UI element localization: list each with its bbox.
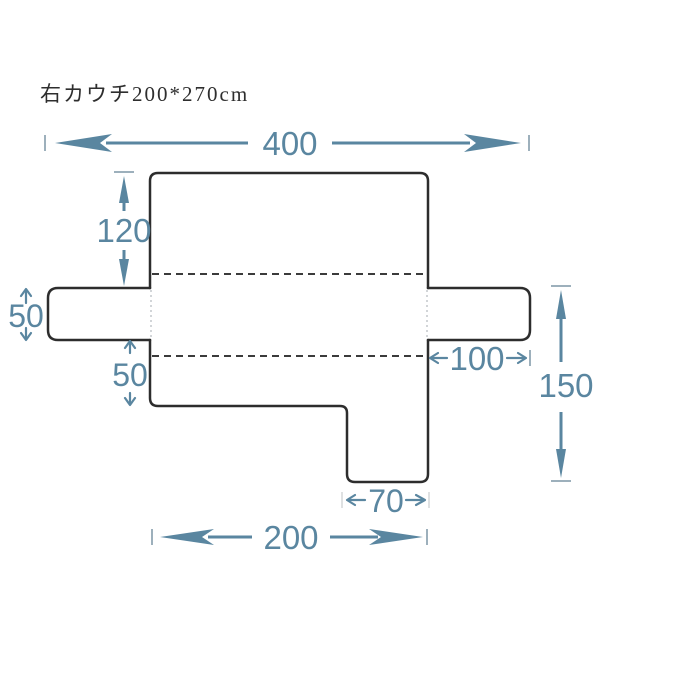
dim-total-width: 400 bbox=[45, 125, 529, 162]
dim-right-side-height-label: 150 bbox=[538, 367, 593, 404]
cover-body-top-outline bbox=[150, 173, 428, 288]
dim-total-width-label: 400 bbox=[262, 125, 317, 162]
product-dimension-page: 右カウチ200*270cm 400 bbox=[0, 0, 679, 679]
dim-seat-width: 200 bbox=[152, 519, 427, 556]
dim-total-width-arrowhead-right bbox=[464, 134, 521, 152]
dim-left-arm-drop: 50 bbox=[8, 289, 44, 340]
fold-lines-group bbox=[151, 274, 427, 356]
dim-chaise-width: 70 bbox=[342, 483, 429, 519]
dim-right-arm-width-label: 100 bbox=[449, 340, 504, 377]
dim-front-seat-drop: 50 bbox=[112, 341, 148, 405]
dim-front-seat-drop-label: 50 bbox=[112, 357, 148, 393]
dim-seat-width-label: 200 bbox=[263, 519, 318, 556]
dim-back-height-arrowhead-up bbox=[119, 176, 129, 203]
dim-right-side-height: 150 bbox=[538, 286, 593, 481]
dim-right-side-height-arrowhead-down bbox=[556, 449, 566, 478]
dim-back-height-arrowhead-down bbox=[119, 259, 129, 286]
right-armrest-outline bbox=[428, 288, 530, 340]
dim-total-width-arrowhead-left bbox=[55, 134, 112, 152]
dim-seat-width-arrowhead-left bbox=[160, 529, 214, 545]
dim-chaise-width-label: 70 bbox=[368, 483, 404, 519]
cover-body-bottom-outline bbox=[150, 340, 428, 482]
dim-back-height-label: 120 bbox=[96, 212, 151, 249]
couch-cover-diagram: 400 120 50 50 bbox=[0, 0, 679, 679]
left-armrest-outline bbox=[48, 288, 150, 340]
dim-back-height: 120 bbox=[96, 172, 151, 286]
dim-right-arm-width: 100 bbox=[430, 340, 530, 377]
